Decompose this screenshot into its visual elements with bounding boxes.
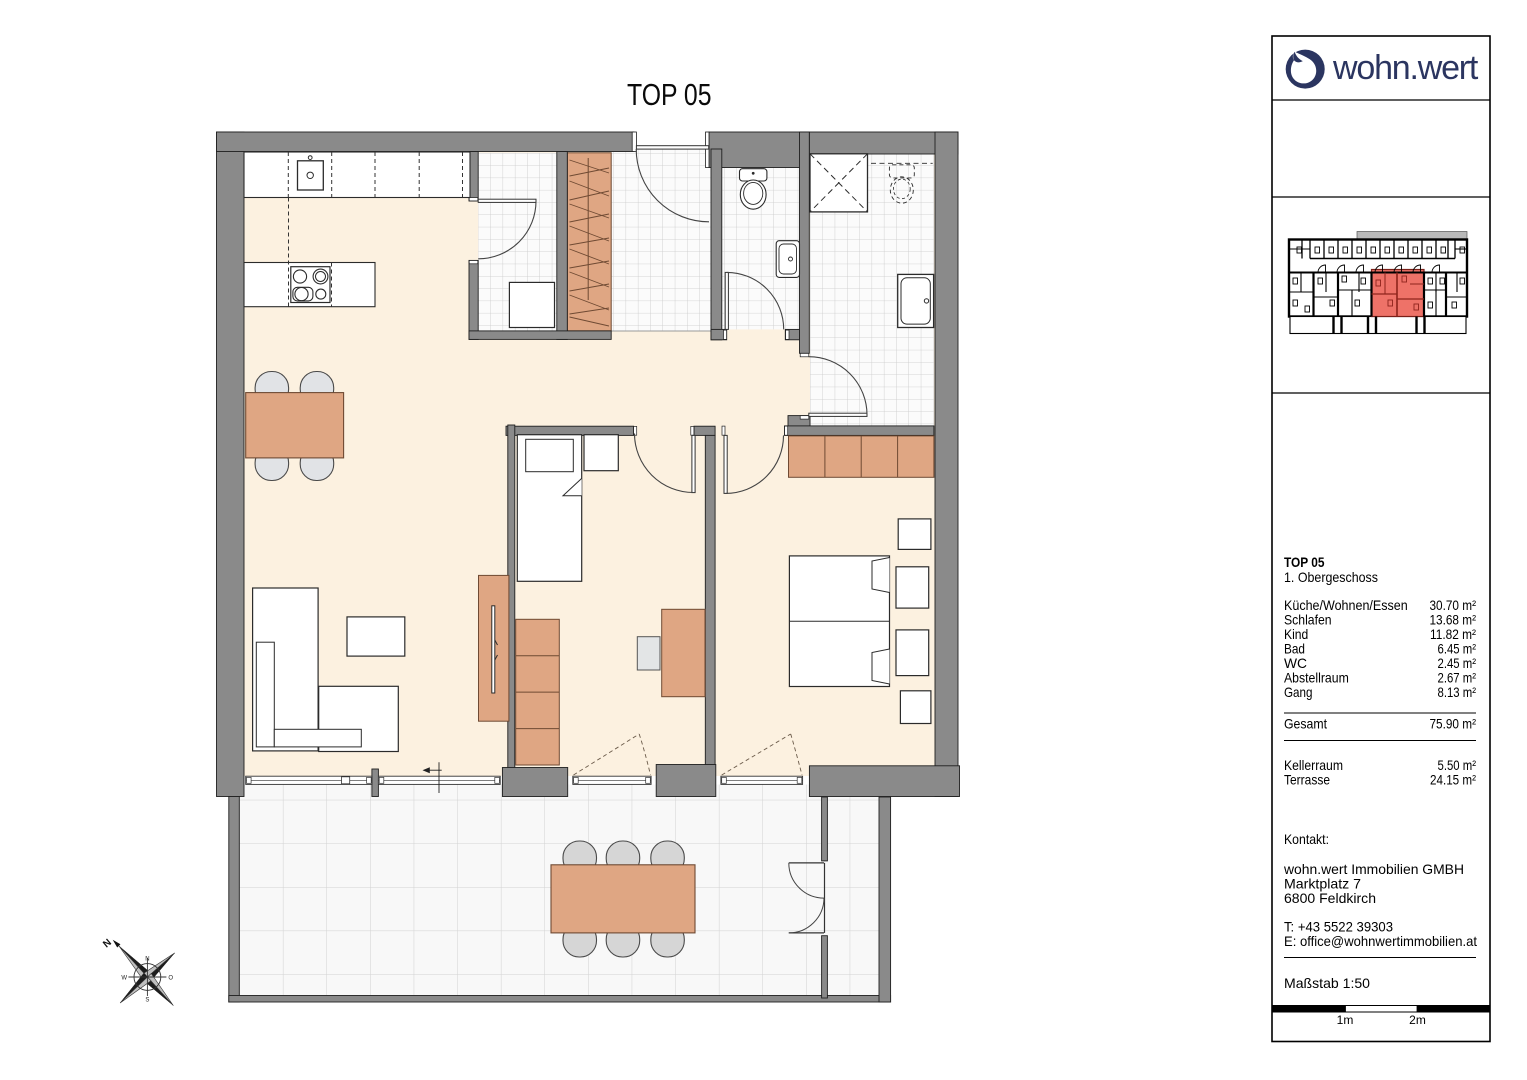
- svg-text:8.13 m²: 8.13 m²: [1438, 684, 1477, 700]
- svg-text:Terrasse: Terrasse: [1284, 772, 1330, 788]
- svg-text:Maßstab 1:50: Maßstab 1:50: [1284, 975, 1370, 991]
- svg-text:1. Obergeschoss: 1. Obergeschoss: [1284, 569, 1378, 585]
- svg-text:24.15 m²: 24.15 m²: [1430, 772, 1476, 788]
- svg-text:2m: 2m: [1409, 1013, 1426, 1027]
- svg-text:W: W: [121, 975, 127, 981]
- svg-text:O: O: [168, 976, 173, 982]
- svg-text:75.90 m²: 75.90 m²: [1430, 716, 1477, 732]
- svg-text:Kontakt:: Kontakt:: [1284, 831, 1329, 847]
- svg-text:Gang: Gang: [1284, 684, 1313, 700]
- svg-text:wohn.wert: wohn.wert: [1332, 49, 1479, 87]
- svg-text:6800 Feldkirch: 6800 Feldkirch: [1284, 890, 1376, 906]
- svg-text:TOP 05: TOP 05: [627, 78, 712, 112]
- svg-text:1m: 1m: [1337, 1013, 1354, 1027]
- svg-text:Gesamt: Gesamt: [1284, 716, 1327, 732]
- svg-text:E: office@wohnwertimmobilien.a: E: office@wohnwertimmobilien.at: [1284, 933, 1477, 949]
- svg-text:S: S: [145, 998, 149, 1004]
- svg-text:N: N: [145, 957, 149, 963]
- svg-text:TOP 05: TOP 05: [1284, 554, 1325, 570]
